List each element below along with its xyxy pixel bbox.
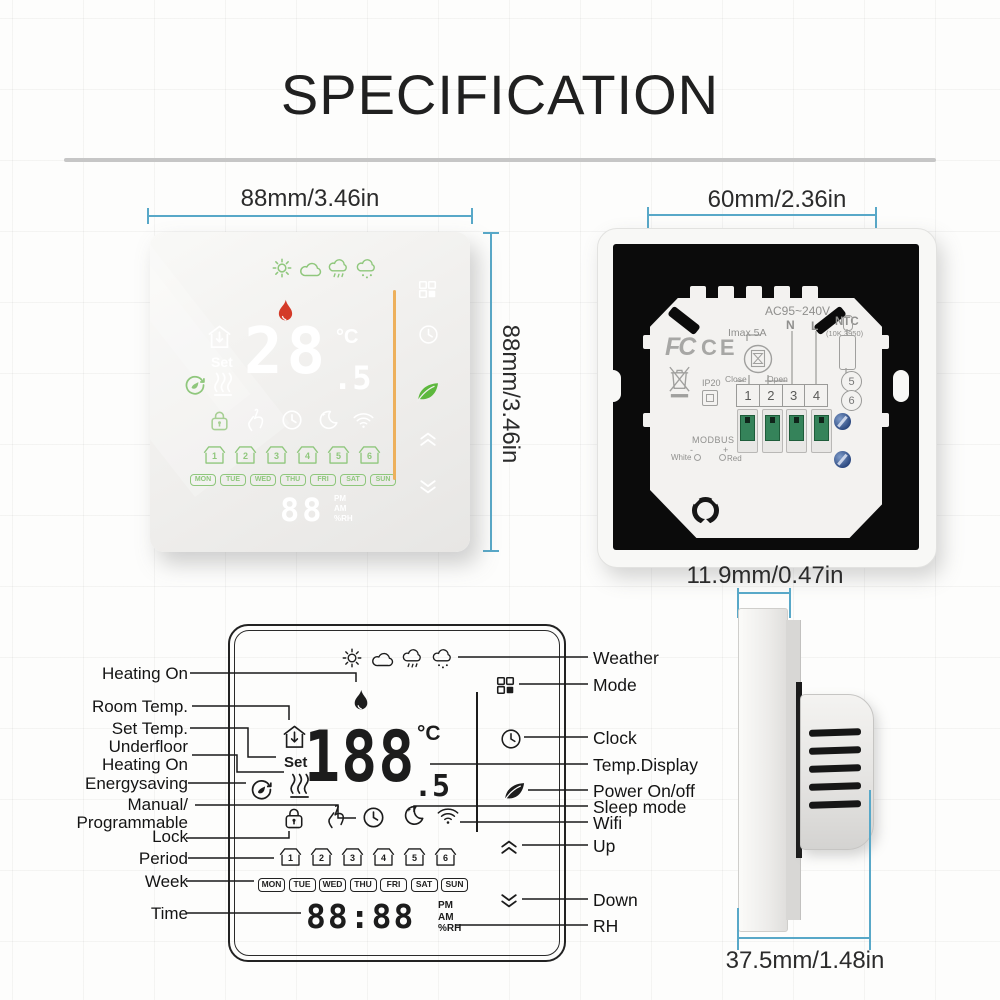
- actuator-valve-icon: [741, 343, 775, 377]
- dim-tick: [737, 908, 739, 950]
- dim-tick: [483, 232, 499, 234]
- side-depth-dimension: 11.9mm/0.47in: [660, 562, 870, 590]
- room-temp-icon: [207, 324, 232, 350]
- period-2-icon: 2: [309, 846, 334, 868]
- modbus-pin-white: [694, 454, 701, 461]
- front-width-dimension: 88mm/3.46in: [165, 185, 455, 213]
- terminal-2: 2: [759, 384, 783, 407]
- period-1-icon: 1: [202, 444, 227, 466]
- side-total-depth-dimension: 37.5mm/1.48in: [685, 947, 925, 975]
- label-mode: Mode: [593, 675, 637, 696]
- week-mon: MON: [258, 878, 285, 892]
- ntc-sensor-bulb: [843, 315, 853, 331]
- label-set-temp: Set Temp.: [40, 719, 188, 739]
- side-module: [800, 694, 874, 850]
- label-period: Period: [40, 849, 188, 869]
- period-4-icon: 4: [295, 444, 320, 466]
- dim-tick: [471, 208, 473, 224]
- period-2-icon: 2: [233, 444, 258, 466]
- terminal-5: 5: [841, 371, 862, 392]
- label-time: Time: [40, 904, 188, 924]
- clock-status-icon: [362, 806, 385, 829]
- am-label: AM: [334, 504, 353, 514]
- weather-sun-icon: [342, 648, 362, 668]
- label-up: Up: [593, 836, 615, 857]
- temperature-value: 28: [244, 320, 329, 384]
- clock-status-icon: [281, 409, 303, 431]
- temperature-unit: °C: [336, 326, 358, 349]
- week-sat: SAT: [411, 878, 438, 892]
- up-button: [498, 838, 520, 856]
- terminal-block: [762, 409, 783, 453]
- thermostat-front-panel: 28 .5 °C Set 1: [150, 232, 470, 552]
- pm-label: PM: [334, 494, 353, 504]
- terminal-block: [786, 409, 807, 453]
- front-view: 88mm/3.46in 88mm/3.46in 28: [145, 185, 545, 585]
- temperature-unit: °C: [417, 722, 441, 746]
- label-heating-on: Heating On: [40, 664, 188, 684]
- ntc-sensor-body: [839, 335, 856, 370]
- mode-button: [496, 676, 515, 695]
- dim-extension: [869, 790, 871, 950]
- weather-rain-icon: [401, 649, 424, 670]
- week-wed: WED: [319, 878, 346, 892]
- week-mon: MON: [190, 474, 216, 486]
- sleep-moon-icon: [317, 409, 339, 431]
- wifi-icon: [352, 411, 375, 429]
- energysaving-icon[interactable]: [184, 374, 206, 396]
- set-label: Set: [211, 354, 233, 370]
- period-6-icon: 6: [357, 444, 382, 466]
- week-thu: THU: [280, 474, 306, 486]
- page-title: SPECIFICATION: [0, 62, 1000, 127]
- temperature-decimal: .5: [414, 772, 450, 802]
- weather-cloud-icon: [299, 261, 323, 278]
- side-top-dim-line: [738, 592, 790, 594]
- week-fri: FRI: [380, 878, 407, 892]
- voltage-label: AC95~240V: [765, 304, 830, 318]
- side-bottom-dim-line: [738, 937, 870, 939]
- label-weather: Weather: [593, 648, 659, 669]
- period-4-icon: 4: [371, 846, 396, 868]
- front-height-dimension: 88mm/3.46in: [496, 249, 524, 539]
- up-button[interactable]: [417, 430, 439, 448]
- week-row: MON TUE WED THU FRI SAT SUN: [190, 474, 415, 486]
- underfloor-heating-icon: [288, 772, 311, 799]
- manual-hand-icon: [246, 408, 266, 432]
- clock-button[interactable]: [418, 324, 439, 345]
- title-divider: [64, 158, 936, 162]
- modbus-connector: [692, 497, 719, 524]
- control-diagram-panel: 188 .5 °C Set 1 2 3 4 5 6: [228, 624, 566, 962]
- period-5-icon: 5: [402, 846, 427, 868]
- terminal-strip: 1 2 3 4: [736, 384, 828, 407]
- clock-button: [500, 728, 522, 750]
- label-week: Week: [40, 872, 188, 892]
- week-fri: FRI: [310, 474, 336, 486]
- period-row: 1 2 3 4 5 6: [278, 846, 458, 868]
- week-sun: SUN: [441, 878, 468, 892]
- week-sat: SAT: [340, 474, 366, 486]
- weather-rain-icon: [327, 259, 350, 280]
- label-underfloor-1: Underfloor: [40, 737, 188, 757]
- dim-tick: [483, 550, 499, 552]
- label-clock: Clock: [593, 728, 637, 749]
- power-leaf-button[interactable]: [415, 380, 441, 404]
- dim-tick: [789, 588, 791, 618]
- temperature-decimal: .5: [333, 362, 372, 394]
- terminal-block: [737, 409, 758, 453]
- week-wed: WED: [250, 474, 276, 486]
- label-wifi: Wifi: [593, 813, 622, 834]
- period-5-icon: 5: [326, 444, 351, 466]
- weather-cloud-icon: [371, 651, 395, 668]
- pm-label: PM: [438, 900, 461, 912]
- lock-icon: [210, 409, 229, 432]
- dim-tick: [147, 208, 149, 224]
- down-button: [498, 892, 520, 910]
- wifi-icon: [436, 806, 460, 825]
- heating-flame-icon: [352, 688, 370, 713]
- weather-sun-icon: [272, 258, 292, 278]
- temperature-value: 188: [304, 722, 415, 793]
- label-manual-1: Manual/: [40, 795, 188, 815]
- terminal-4: 4: [804, 384, 828, 407]
- rh-label: %RH: [438, 923, 461, 935]
- period-3-icon: 3: [264, 444, 289, 466]
- week-thu: THU: [350, 878, 377, 892]
- period-row: 1 2 3 4 5 6: [202, 444, 392, 466]
- time-units: PM AM %RH: [334, 494, 353, 524]
- modbus-white-label: White: [671, 453, 691, 462]
- label-energysaving: Energysaving: [40, 774, 188, 794]
- side-view: 11.9mm/0.47in 37.5mm/1.48in: [650, 555, 1000, 1000]
- terminal-block: [811, 409, 832, 453]
- terminal-3: 3: [782, 384, 806, 407]
- week-row: MON TUE WED THU FRI SAT SUN: [258, 878, 468, 892]
- ce-logo: CE: [701, 335, 738, 361]
- front-width-dimension-line: [147, 215, 473, 217]
- terminal-6: 6: [841, 390, 862, 411]
- front-height-dimension-line: [490, 232, 492, 552]
- weather-snow-icon: [431, 649, 454, 670]
- fcc-logo: FC: [665, 333, 694, 362]
- time-display: 88: [280, 494, 325, 526]
- mode-button[interactable]: [418, 280, 437, 299]
- sleep-moon-icon: [402, 804, 425, 827]
- label-lock: Lock: [40, 827, 188, 847]
- am-label: AM: [438, 912, 461, 924]
- ip-rating-label: IP20: [702, 378, 721, 388]
- underfloor-heating-icon: [212, 371, 234, 397]
- modbus-label: MODBUS: [692, 435, 735, 445]
- neutral-label: N: [786, 318, 795, 332]
- specification-sheet: SPECIFICATION 88mm/3.46in 88mm/3.46in: [0, 0, 1000, 1000]
- period-1-icon: 1: [278, 846, 303, 868]
- time-units: PM AM %RH: [438, 900, 461, 935]
- touch-divider-line: [393, 290, 396, 480]
- down-button[interactable]: [417, 478, 439, 496]
- power-leaf-button: [502, 780, 527, 803]
- period-6-icon: 6: [433, 846, 458, 868]
- week-tue: TUE: [289, 878, 316, 892]
- screw-bottom: [834, 451, 851, 468]
- week-tue: TUE: [220, 474, 246, 486]
- live-label: L: [811, 319, 818, 333]
- label-underfloor-2: Heating On: [40, 755, 188, 775]
- set-label: Set: [284, 754, 307, 771]
- terminal-1: 1: [736, 384, 760, 407]
- back-view: 60mm/2.36in: [595, 185, 955, 585]
- label-rh: RH: [593, 916, 618, 937]
- lock-icon: [284, 806, 304, 830]
- label-down: Down: [593, 890, 638, 911]
- weather-snow-icon: [355, 259, 378, 280]
- ip20-box-icon: [702, 390, 718, 406]
- manual-hand-icon: [326, 804, 347, 829]
- side-front-panel: [738, 608, 788, 932]
- weee-bin-icon: [667, 365, 692, 400]
- time-display: 88:88: [306, 900, 415, 933]
- label-room-temp: Room Temp.: [40, 697, 188, 717]
- terminal-blocks: [737, 409, 832, 453]
- modbus-pin-red: [719, 454, 726, 461]
- rh-label: %RH: [334, 514, 353, 524]
- touch-divider-line: [476, 692, 478, 832]
- period-3-icon: 3: [340, 846, 365, 868]
- energysaving-icon: [250, 778, 273, 801]
- modbus-red-label: Red: [727, 454, 742, 463]
- room-temp-icon: [282, 724, 307, 750]
- screw-top: [834, 413, 851, 430]
